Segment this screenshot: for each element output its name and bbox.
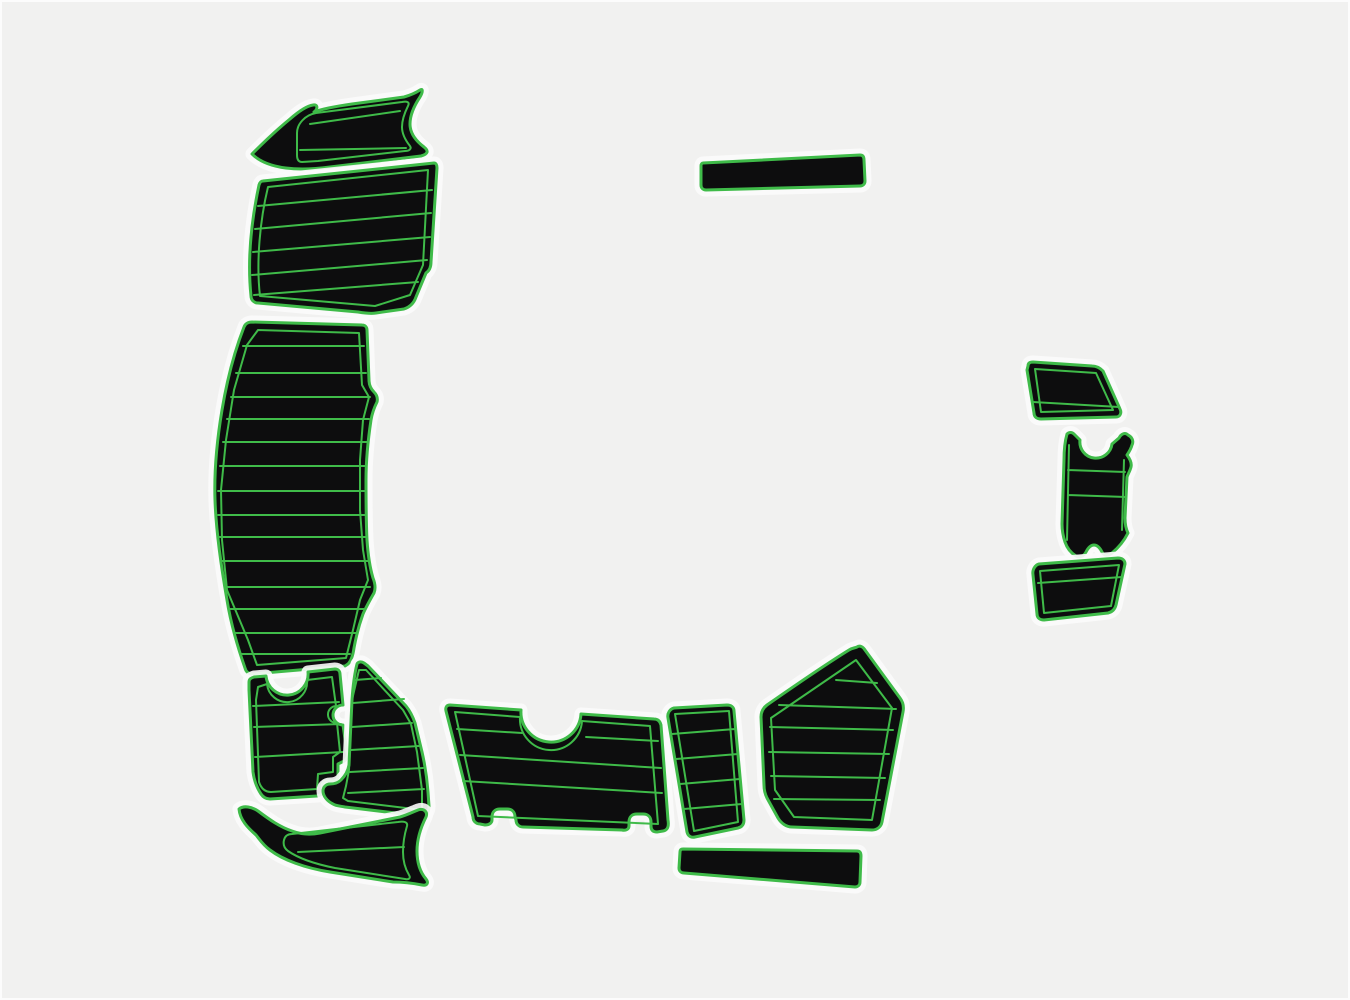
pad-plain-bar [701, 155, 865, 190]
pad-engine-bracket [1062, 433, 1133, 557]
pad-bow-wing-top-left [252, 89, 427, 169]
pad-step-top-right [1027, 362, 1121, 419]
pad-step-narrow [668, 705, 744, 837]
pad-side-deck-long [215, 322, 378, 674]
pad-bow-wing-bottom-left [239, 807, 427, 885]
pad-transom-wide [446, 705, 669, 832]
pad-step-bottom-right [1033, 558, 1125, 620]
pad-trim-strip [679, 849, 861, 887]
pad-helm-shield [761, 646, 903, 830]
product-photo-canvas [0, 0, 1350, 1000]
pad-kit-illustration [0, 0, 1350, 1000]
pad-foredeck-upper [250, 163, 437, 313]
